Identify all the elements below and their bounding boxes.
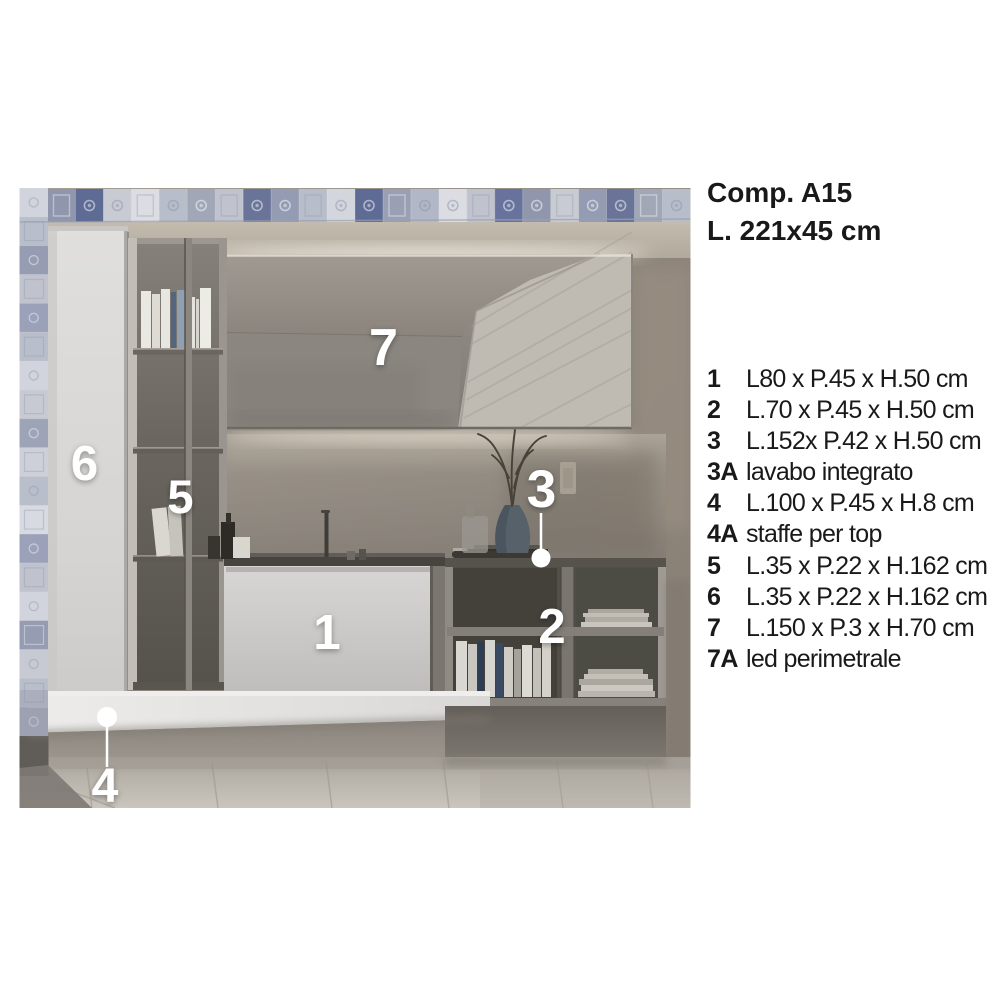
- svg-text:5: 5: [167, 470, 193, 523]
- svg-text:7: 7: [369, 319, 398, 377]
- svg-text:4: 4: [92, 760, 119, 813]
- svg-text:3: 3: [527, 460, 556, 519]
- svg-text:2: 2: [538, 600, 565, 654]
- svg-text:1: 1: [313, 606, 340, 660]
- svg-text:6: 6: [71, 437, 98, 491]
